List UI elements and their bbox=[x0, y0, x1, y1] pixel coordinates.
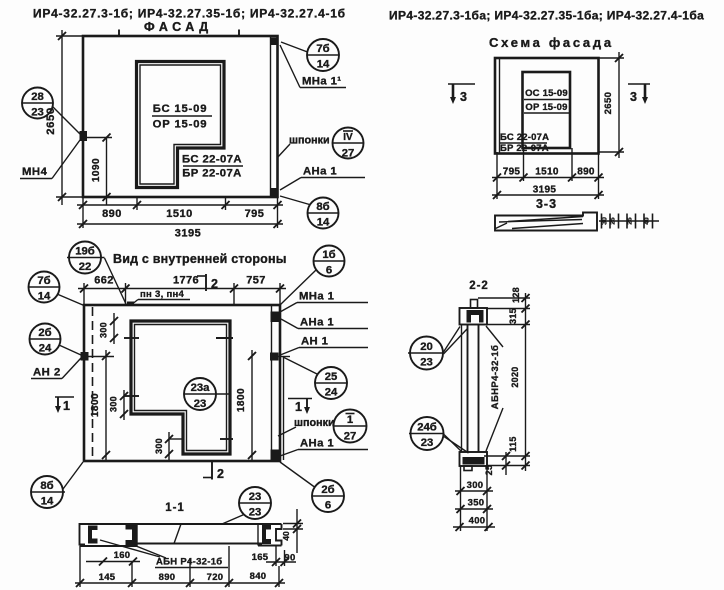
svg-text:300: 300 bbox=[109, 396, 119, 412]
svg-text:1-1: 1-1 bbox=[165, 502, 185, 514]
svg-text:ИР4-32.27.3-1б; ИР4-32.27.35-1: ИР4-32.27.3-1б; ИР4-32.27.35-1б; ИР4-32.… bbox=[33, 7, 346, 21]
svg-text:14: 14 bbox=[38, 291, 51, 303]
svg-text:24: 24 bbox=[325, 387, 338, 399]
svg-text:795: 795 bbox=[503, 167, 521, 178]
svg-text:пн 3, пн4: пн 3, пн4 bbox=[140, 289, 185, 300]
svg-text:2б: 2б bbox=[38, 327, 51, 339]
svg-text:22: 22 bbox=[79, 261, 92, 273]
svg-text:300: 300 bbox=[467, 480, 484, 491]
svg-text:840: 840 bbox=[250, 571, 267, 582]
svg-text:БР 22-07А: БР 22-07А bbox=[182, 168, 241, 180]
svg-text:795: 795 bbox=[245, 208, 265, 220]
svg-text:ОС 15-09: ОС 15-09 bbox=[525, 88, 568, 99]
svg-text:14: 14 bbox=[317, 217, 330, 229]
svg-text:14: 14 bbox=[41, 496, 54, 508]
svg-text:145: 145 bbox=[99, 572, 116, 583]
svg-text:27: 27 bbox=[342, 148, 355, 160]
svg-text:25: 25 bbox=[610, 217, 617, 225]
svg-text:24б: 24б bbox=[417, 422, 437, 434]
svg-text:40: 40 bbox=[281, 531, 291, 541]
svg-text:ОР 15-09: ОР 15-09 bbox=[525, 102, 567, 113]
svg-text:АН 2: АН 2 bbox=[33, 367, 61, 379]
svg-text:23: 23 bbox=[420, 357, 433, 369]
svg-text:1: 1 bbox=[63, 399, 70, 413]
svg-text:350: 350 bbox=[468, 498, 485, 509]
svg-text:шпонки: шпонки bbox=[294, 417, 335, 429]
svg-text:8б: 8б bbox=[40, 480, 53, 492]
svg-text:20: 20 bbox=[420, 341, 433, 353]
svg-text:1800: 1800 bbox=[236, 388, 247, 412]
svg-text:6: 6 bbox=[325, 500, 331, 512]
svg-text:шпонки: шпонки bbox=[289, 135, 330, 147]
svg-text:300: 300 bbox=[99, 322, 109, 338]
svg-text:2: 2 bbox=[217, 467, 224, 481]
svg-text:МН4: МН4 bbox=[22, 166, 48, 178]
svg-text:IV: IV bbox=[343, 132, 353, 143]
svg-text:300: 300 bbox=[154, 438, 164, 454]
svg-text:315: 315 bbox=[508, 308, 518, 324]
svg-text:2-2: 2-2 bbox=[469, 280, 489, 292]
svg-text:23: 23 bbox=[249, 491, 262, 503]
svg-text:Схема фасада: Схема фасада bbox=[489, 35, 614, 50]
svg-text:БР 22-07А: БР 22-07А bbox=[500, 143, 549, 154]
svg-text:890: 890 bbox=[577, 167, 595, 178]
svg-text:АНа 1: АНа 1 bbox=[300, 317, 334, 329]
svg-text:БС 22-07А: БС 22-07А bbox=[500, 132, 549, 143]
svg-text:14: 14 bbox=[317, 59, 330, 71]
svg-text:23: 23 bbox=[31, 107, 44, 119]
svg-text:БС 15-09: БС 15-09 bbox=[153, 103, 208, 115]
svg-text:25: 25 bbox=[627, 217, 634, 225]
svg-text:1510: 1510 bbox=[535, 167, 559, 178]
svg-text:30: 30 bbox=[602, 217, 609, 225]
svg-text:40: 40 bbox=[644, 217, 651, 225]
svg-text:Вид с внутренней стороны: Вид с внутренней стороны bbox=[113, 252, 287, 266]
svg-text:27: 27 bbox=[344, 431, 357, 443]
svg-text:МНа 1: МНа 1 bbox=[299, 291, 334, 303]
svg-text:1776: 1776 bbox=[173, 275, 199, 287]
svg-text:3195: 3195 bbox=[533, 185, 557, 196]
svg-text:АН 1: АН 1 bbox=[301, 336, 328, 348]
svg-text:БС 22-07А: БС 22-07А bbox=[182, 154, 242, 166]
svg-text:400: 400 bbox=[469, 516, 486, 527]
svg-text:19б: 19б bbox=[75, 246, 95, 258]
svg-text:23: 23 bbox=[194, 398, 207, 410]
svg-text:7б: 7б bbox=[37, 275, 50, 287]
svg-text:МНа 1¹: МНа 1¹ bbox=[302, 76, 341, 88]
svg-text:1: 1 bbox=[347, 414, 353, 426]
svg-text:1510: 1510 bbox=[166, 208, 192, 220]
svg-text:3: 3 bbox=[630, 90, 637, 104]
svg-text:3195: 3195 bbox=[175, 228, 201, 240]
svg-text:23: 23 bbox=[421, 437, 434, 449]
svg-text:25: 25 bbox=[484, 465, 494, 476]
svg-text:23а: 23а bbox=[191, 382, 211, 394]
svg-text:3-3: 3-3 bbox=[536, 197, 557, 211]
svg-text:АБН Р4-32-1б: АБН Р4-32-1б bbox=[156, 557, 222, 568]
svg-text:3: 3 bbox=[460, 90, 467, 104]
svg-text:АБНР4-32-1б: АБНР4-32-1б bbox=[490, 345, 501, 410]
svg-text:2020: 2020 bbox=[510, 366, 520, 387]
svg-text:АНа 1: АНа 1 bbox=[300, 438, 334, 450]
svg-text:6: 6 bbox=[326, 265, 332, 277]
svg-text:23: 23 bbox=[249, 507, 262, 519]
svg-text:890: 890 bbox=[102, 208, 122, 220]
svg-text:1800: 1800 bbox=[90, 393, 101, 417]
svg-text:128: 128 bbox=[511, 287, 521, 303]
svg-text:28: 28 bbox=[31, 91, 44, 103]
svg-text:1: 1 bbox=[295, 400, 302, 414]
svg-text:25: 25 bbox=[325, 371, 338, 383]
svg-text:757: 757 bbox=[246, 275, 266, 287]
svg-text:662: 662 bbox=[94, 275, 114, 287]
svg-text:ОР 15-09: ОР 15-09 bbox=[153, 119, 208, 131]
svg-text:2б: 2б bbox=[321, 484, 334, 496]
svg-text:2650: 2650 bbox=[603, 92, 614, 115]
svg-text:1090: 1090 bbox=[91, 158, 102, 182]
svg-text:24: 24 bbox=[39, 343, 52, 355]
svg-text:8б: 8б bbox=[316, 201, 329, 213]
svg-text:ФАСАД: ФАСАД bbox=[144, 20, 213, 34]
svg-text:ИР4-32.27.3-1ба; ИР4-32.27.35-: ИР4-32.27.3-1ба; ИР4-32.27.35-1ба; ИР4-3… bbox=[389, 9, 704, 23]
svg-text:720: 720 bbox=[207, 572, 224, 583]
svg-text:АНа 1: АНа 1 bbox=[303, 166, 337, 178]
svg-text:1б: 1б bbox=[322, 249, 335, 261]
svg-text:2: 2 bbox=[211, 277, 218, 291]
svg-text:160: 160 bbox=[114, 550, 131, 561]
svg-text:7б: 7б bbox=[316, 43, 329, 55]
svg-text:115: 115 bbox=[508, 436, 518, 451]
svg-text:890: 890 bbox=[159, 572, 176, 583]
